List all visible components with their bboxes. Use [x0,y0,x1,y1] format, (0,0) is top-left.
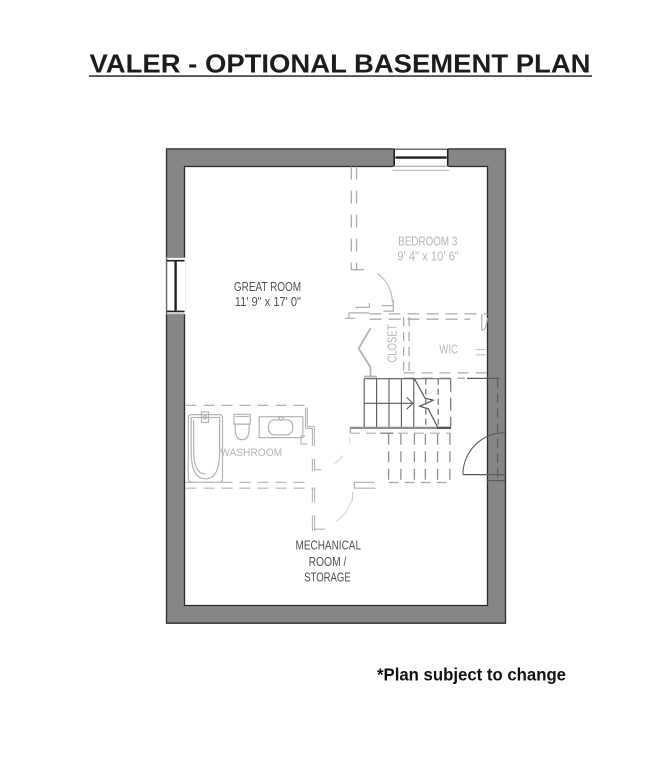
svg-text:VALER - OPTIONAL BASEMENT PLAN: VALER - OPTIONAL BASEMENT PLAN [90,48,591,78]
svg-text:WIC: WIC [439,342,458,356]
svg-text:11' 9" x 17' 0": 11' 9" x 17' 0" [235,294,301,309]
svg-text:WASHROOM: WASHROOM [220,447,282,459]
svg-text:GREAT ROOM: GREAT ROOM [234,279,301,294]
svg-text:BEDROOM 3: BEDROOM 3 [398,234,457,248]
svg-text:9' 4" x 10' 6": 9' 4" x 10' 6" [397,250,458,264]
svg-text:MECHANICAL: MECHANICAL [296,538,362,553]
svg-text:STORAGE: STORAGE [304,570,351,585]
svg-text:ROOM /: ROOM / [309,554,347,569]
svg-text:CLOSET: CLOSET [385,324,400,362]
svg-text:*Plan subject to change: *Plan subject to change [377,665,566,685]
